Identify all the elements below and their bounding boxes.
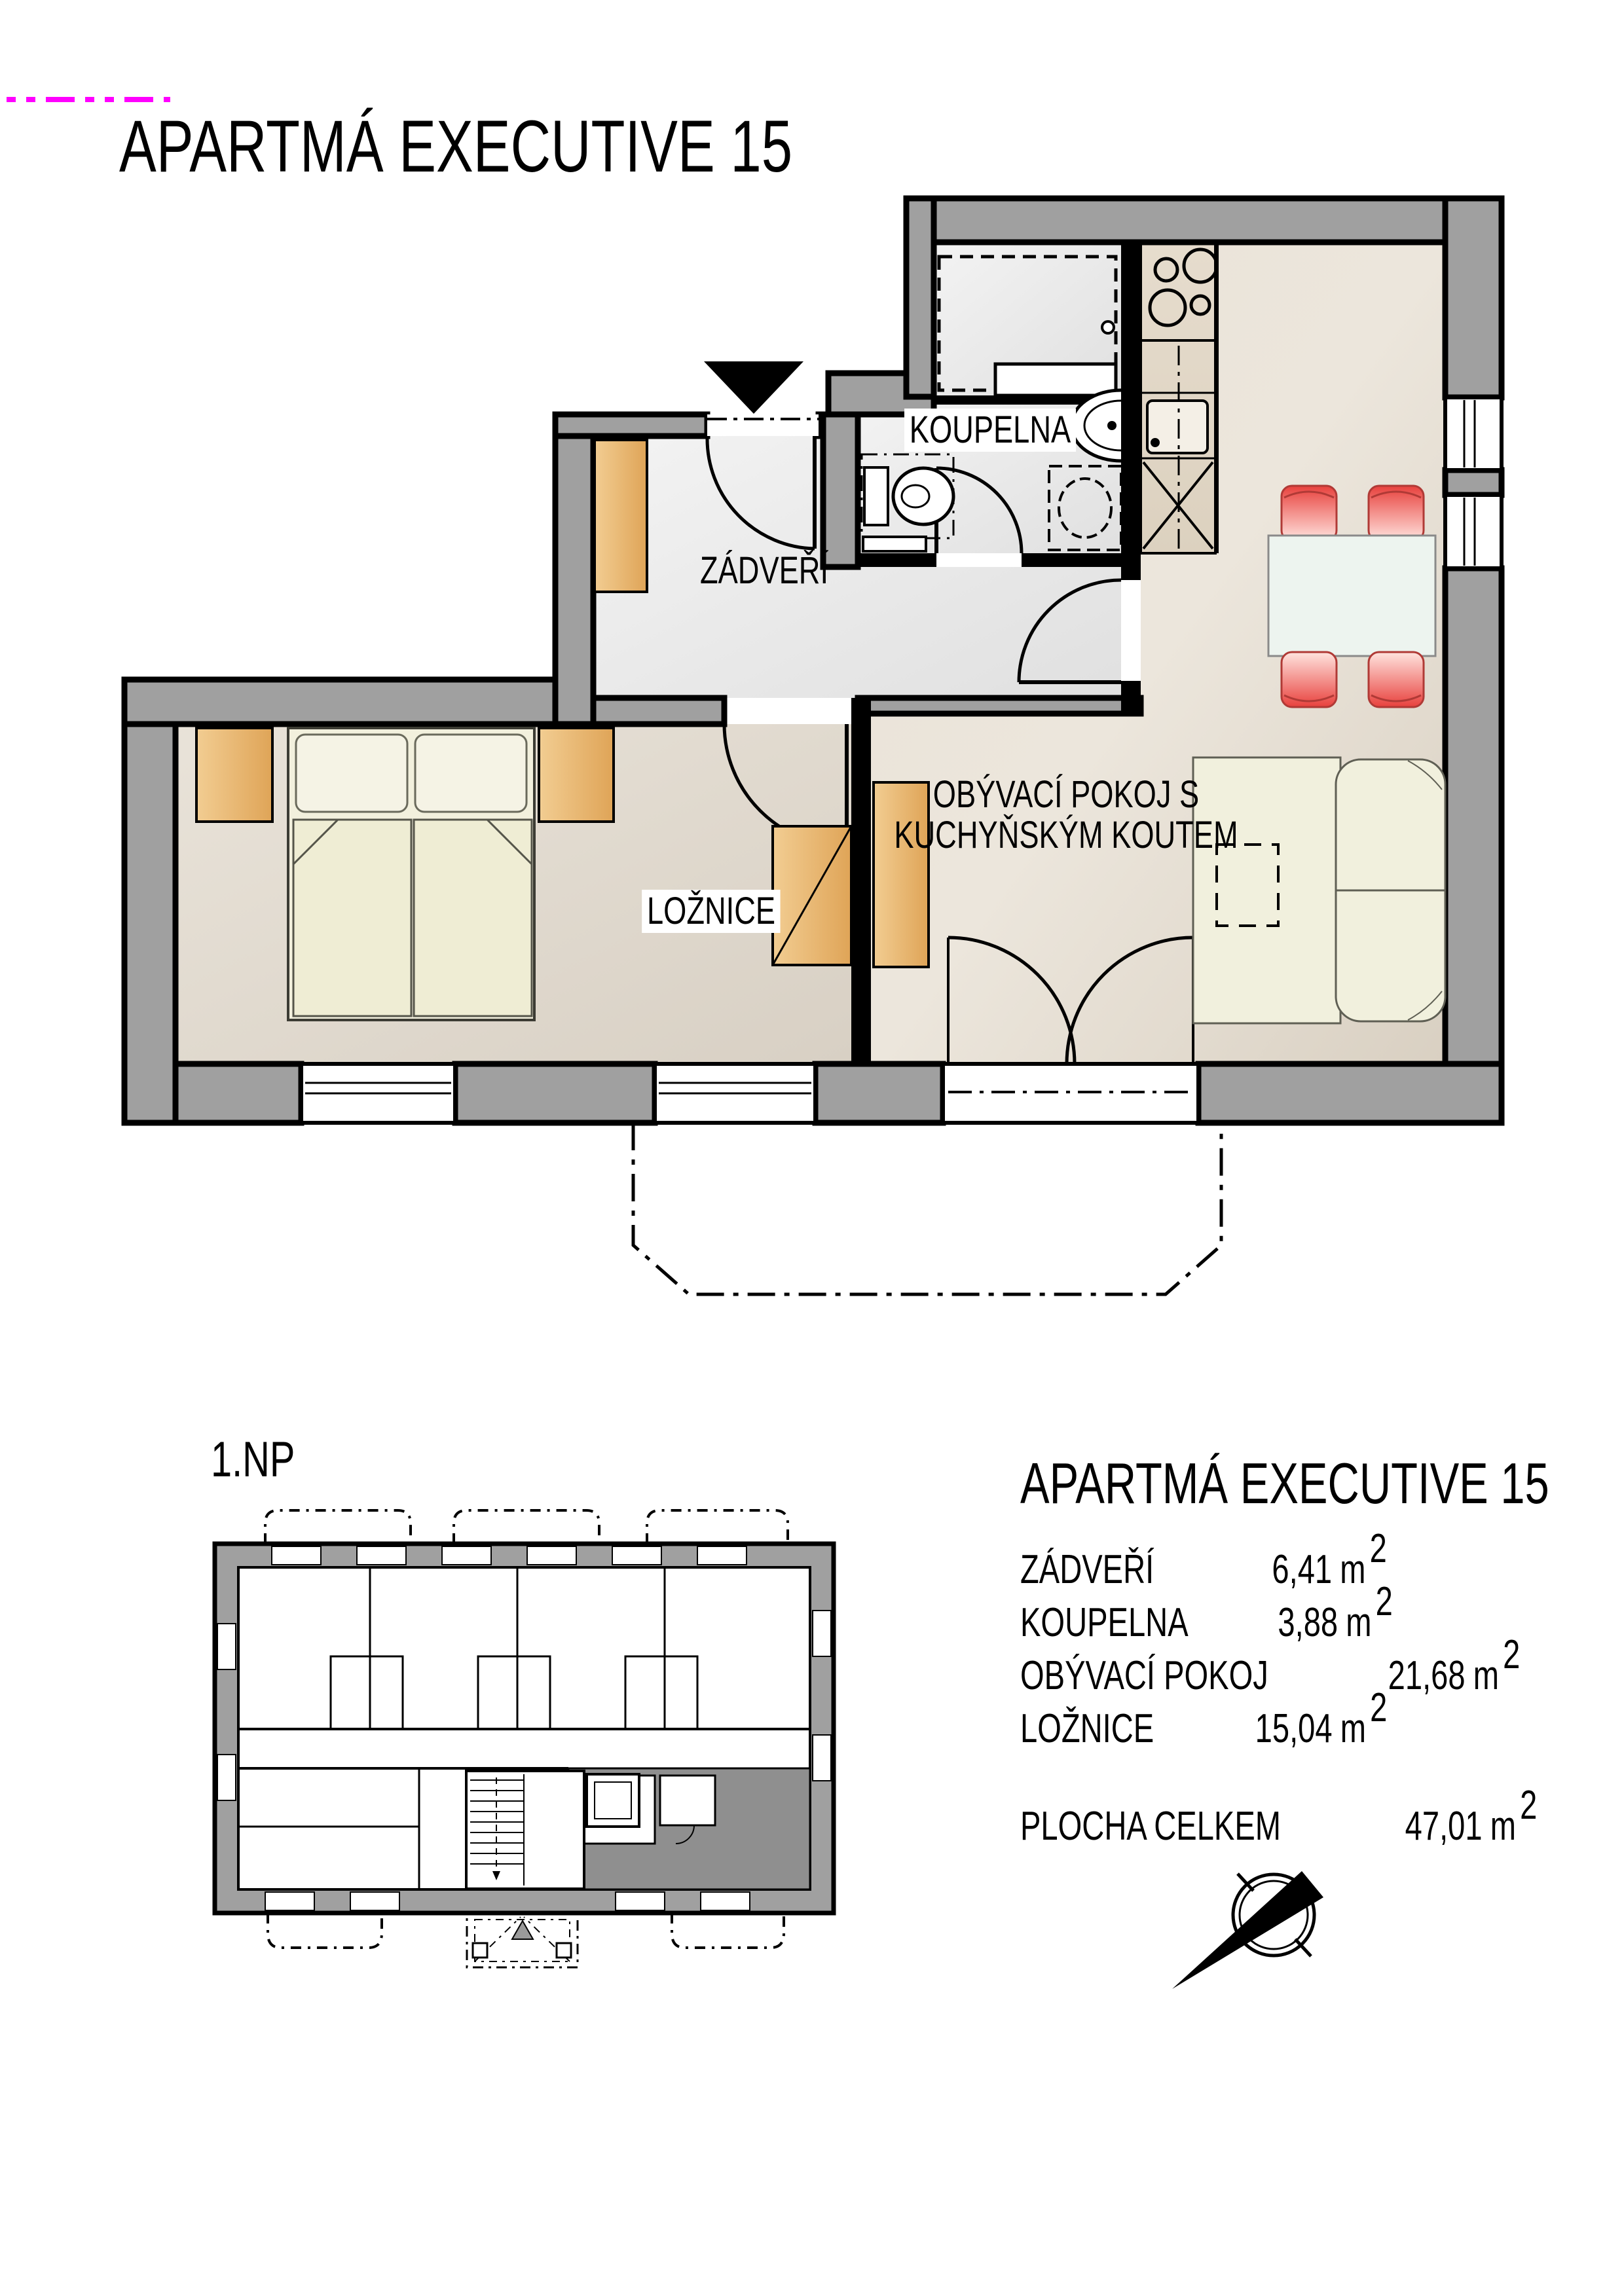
area-value: 21,68m2 <box>1388 1655 1521 1697</box>
overview-stairs <box>466 1771 584 1889</box>
window-bedroom-1 <box>301 1064 455 1123</box>
dining-table <box>1268 536 1435 656</box>
pillow-right <box>415 735 526 812</box>
area-label: ZÁDVEŘÍ <box>1020 1549 1154 1591</box>
area-value: 6,41m2 <box>1272 1549 1387 1591</box>
pillow-left <box>296 735 407 812</box>
room-label-koupelna: KOUPELNA <box>904 409 1076 452</box>
window-bedroom-2 <box>655 1064 815 1123</box>
bath-shelf <box>995 364 1116 395</box>
window-right-1 <box>1445 397 1502 470</box>
room-label-loznice: LOŽNICE <box>642 890 781 933</box>
area-label: KOUPELNA <box>1020 1602 1189 1644</box>
area-label: LOŽNICE <box>1020 1708 1154 1750</box>
area-label: OBÝVACÍ POKOJ <box>1020 1655 1268 1697</box>
main-floor-plan <box>124 198 1502 1294</box>
floor-plan-sheet: { "title": "APARTMÁ EXECUTIVE 15", "floo… <box>0 0 1624 2296</box>
north-arrow-icon <box>1172 1871 1323 1989</box>
area-value: 3,88m2 <box>1278 1602 1392 1644</box>
double-bed <box>288 728 534 1020</box>
entrance-arrow-icon <box>704 361 803 414</box>
plan-canvas <box>0 0 1624 2296</box>
area-value: 15,04m2 <box>1255 1708 1387 1750</box>
total-value: 47,01m2 <box>1405 1806 1537 1848</box>
page-title: APARTMÁ EXECUTIVE 15 <box>119 110 1005 183</box>
hall-wardrobe <box>595 440 647 592</box>
mattress-right <box>414 820 532 1016</box>
room-label-zadveri: ZÁDVEŘÍ <box>700 551 828 591</box>
shower-door-handle <box>1102 321 1114 333</box>
window-right-2 <box>1445 495 1502 568</box>
legend-row-obyvaci: OBÝVACÍ POKOJ 21,68m2 <box>1020 1655 1387 1697</box>
kitchen-sink <box>1147 401 1208 453</box>
legend-row-koupelna: KOUPELNA 3,88m2 <box>1020 1602 1387 1644</box>
bath-mat <box>863 537 926 551</box>
floor-level-label: 1.NP <box>211 1435 322 1485</box>
total-label: PLOCHA CELKEM <box>1020 1806 1281 1848</box>
bedroom-wardrobe <box>773 826 851 965</box>
mattress-left <box>293 820 411 1016</box>
overview-entrance-porch <box>467 1913 578 1967</box>
overview-floor-plan <box>215 1510 834 1967</box>
overview-elevator <box>587 1774 639 1827</box>
legend-row-loznice: LOŽNICE 15,04m2 <box>1020 1708 1387 1750</box>
terrace-outline <box>633 1123 1221 1294</box>
legend-row-zadveri: ZÁDVEŘÍ 6,41m2 <box>1020 1549 1387 1591</box>
nightstand-right <box>539 728 614 822</box>
legend-title: APARTMÁ EXECUTIVE 15 <box>1020 1455 1624 1512</box>
room-label-obyvaci: OBÝVACÍ POKOJ S KUCHYŇSKÝM KOUTEM <box>894 774 1238 856</box>
page-title-text: APARTMÁ EXECUTIVE 15 <box>119 110 792 183</box>
nightstand-left <box>196 728 272 822</box>
legend-row-total: PLOCHA CELKEM 47,01m2 <box>1020 1806 1387 1848</box>
